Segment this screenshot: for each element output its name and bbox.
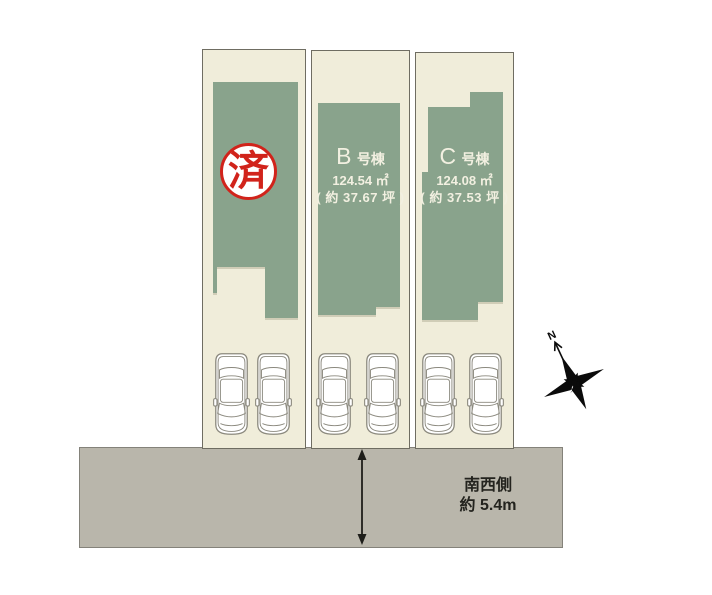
building-b-name: B 号棟 xyxy=(311,145,410,168)
car-icon xyxy=(213,350,250,438)
building-c-area-m2: 124.08 ㎡ xyxy=(415,174,514,187)
car-icon xyxy=(467,350,504,438)
building-c-name: C 号棟 xyxy=(415,145,514,168)
building-b-suffix: 号棟 xyxy=(357,151,385,167)
sold-stamp: 済 xyxy=(220,143,277,200)
car-icon xyxy=(364,350,401,438)
car-icon xyxy=(316,350,353,438)
building-b-letter: B xyxy=(336,143,352,169)
building-b-label: B 号棟 124.54 ㎡ ( 約 37.67 坪 ) xyxy=(311,145,410,204)
site-plan: 南西側 約 5.4m 済 B 号棟 124.54 ㎡ ( 約 37.67 坪 )… xyxy=(0,0,712,595)
car-icon xyxy=(420,350,457,438)
road-side-label: 南西側 xyxy=(408,476,568,496)
building-c-area-tsubo: ( 約 37.53 坪 ) xyxy=(415,191,514,204)
road-label: 南西側 約 5.4m xyxy=(408,476,568,516)
road-width-label: 約 5.4m xyxy=(408,496,568,516)
sold-stamp-text: 済 xyxy=(228,151,269,192)
compass-rose-icon: N xyxy=(524,323,624,438)
building-c-letter: C xyxy=(439,143,457,169)
road-width-arrow-icon xyxy=(354,448,370,546)
road: 南西側 約 5.4m xyxy=(79,447,563,548)
compass-north-label: N xyxy=(546,329,558,343)
car-icon xyxy=(255,350,292,438)
building-b-area-m2: 124.54 ㎡ xyxy=(311,174,410,187)
building-c-label: C 号棟 124.08 ㎡ ( 約 37.53 坪 ) xyxy=(415,145,514,204)
building-b-area-tsubo: ( 約 37.67 坪 ) xyxy=(311,191,410,204)
building-c-suffix: 号棟 xyxy=(462,151,490,167)
